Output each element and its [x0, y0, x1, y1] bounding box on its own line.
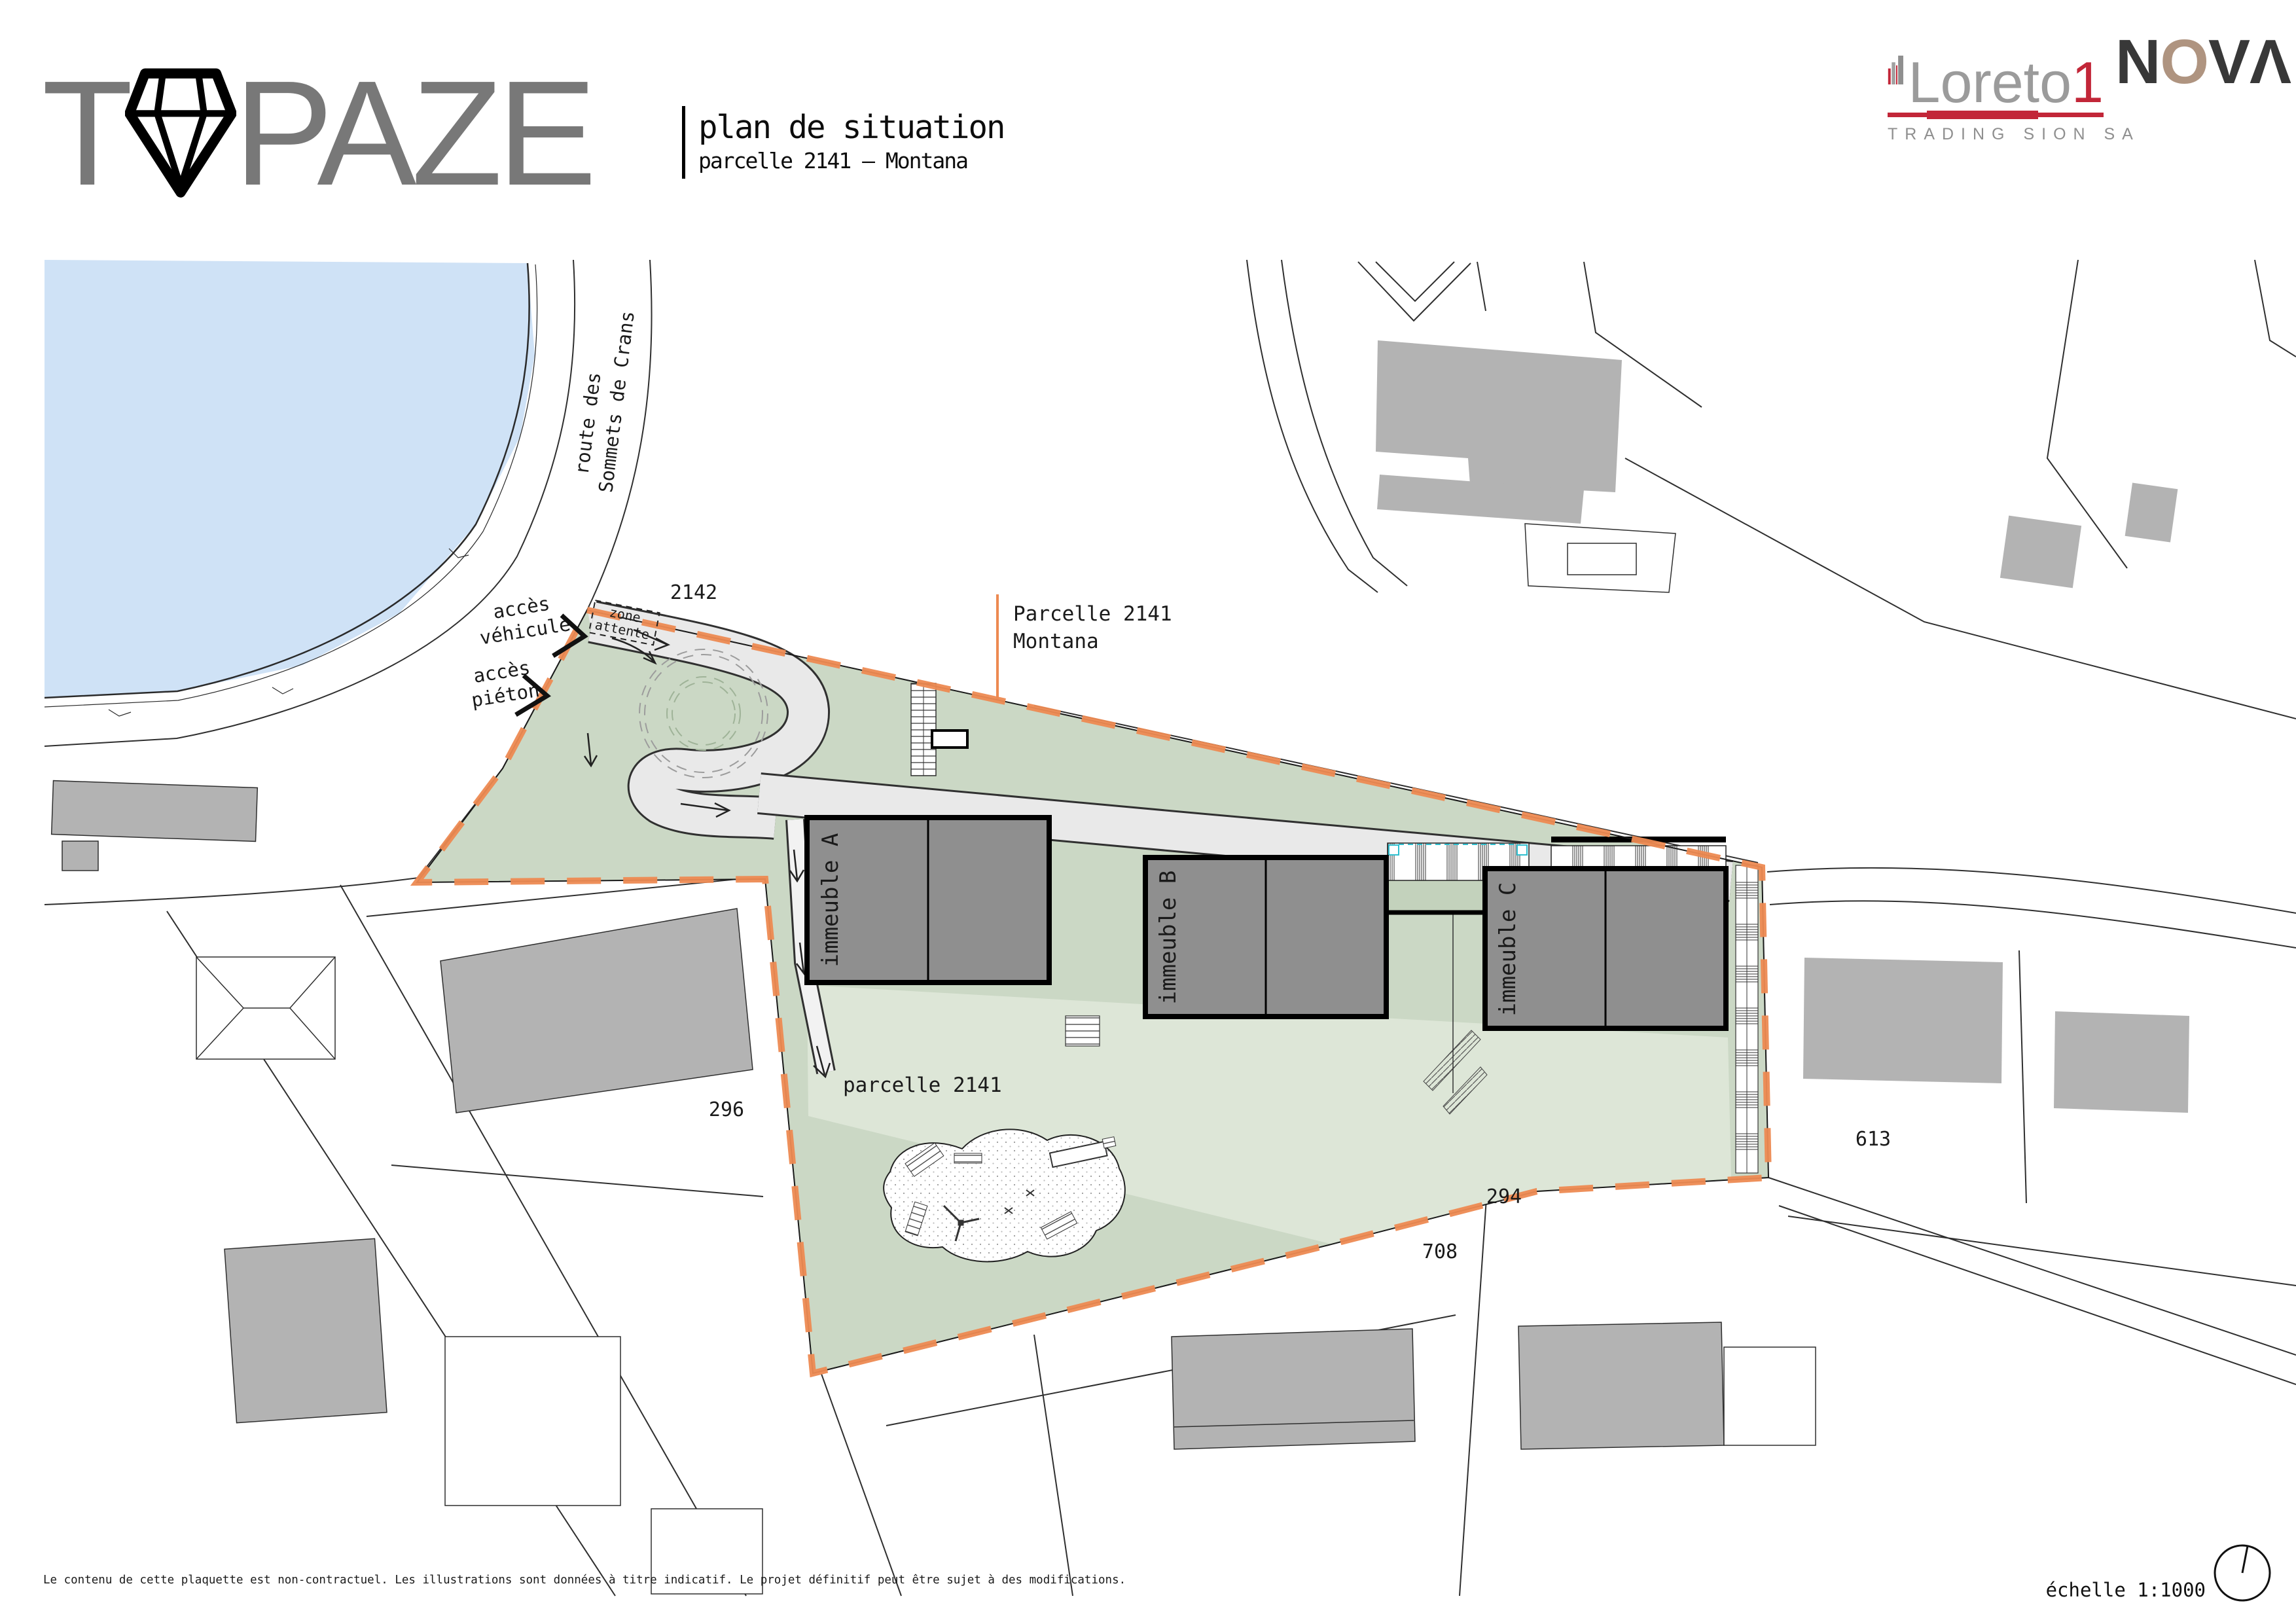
parcel-number-296: 296: [709, 1098, 744, 1121]
street-name: route des Sommets de Crans: [571, 310, 639, 494]
topaze-logo: T PAZE: [42, 55, 592, 212]
nova-v: V: [2208, 27, 2250, 97]
scale-label: échelle 1:1000: [1990, 1579, 2206, 1601]
loreto1-rule: [1888, 113, 2104, 117]
building-a-label: immeuble A: [817, 833, 844, 967]
access-vehicle: accès véhicule: [475, 590, 584, 656]
playground: [884, 1129, 1125, 1261]
nova-logo: NOVΛ: [2115, 26, 2291, 98]
building-a: immeuble A: [807, 818, 1049, 983]
building-c: immeuble C: [1485, 869, 1726, 1028]
inner-parcel-label: parcelle 2141: [843, 1074, 1002, 1097]
parcel-callout-line1: Parcelle 2141: [1013, 602, 1172, 626]
disclaimer-text: Le contenu de cette plaquette est non-co…: [43, 1574, 1126, 1587]
stairs-between-ab: [1066, 1016, 1100, 1046]
title-block: plan de situation parcelle 2141 – Montan…: [682, 106, 1005, 179]
loreto1-tagline: TRADING SION SA: [1888, 125, 2104, 144]
loreto1-buildings-icon: [1888, 27, 1906, 110]
parcel-number-708: 708: [1422, 1240, 1458, 1263]
parking-strip-east: [1736, 865, 1758, 1173]
loreto1-one: 1: [2072, 55, 2104, 110]
north-compass-icon: [2212, 1543, 2272, 1603]
loreto1-logo: Loreto1 TRADING SION SA: [1888, 27, 2104, 144]
diamond-icon: [125, 62, 236, 205]
building-b: immeuble B: [1145, 857, 1386, 1017]
situation-plan-map: immeuble A immeuble B immeuble C 2142 29…: [0, 0, 2296, 1624]
parcel-number-2142: 2142: [670, 581, 717, 604]
nova-o: O: [2160, 27, 2208, 97]
nova-a: Λ: [2250, 27, 2291, 97]
loreto1-name: Loreto: [1909, 55, 2072, 110]
page-subtitle: parcelle 2141 – Montana: [698, 148, 1005, 173]
building-c-label: immeuble C: [1495, 882, 1521, 1017]
site-plan-page: immeuble A immeuble B immeuble C 2142 29…: [0, 0, 2296, 1624]
parcel-number-294: 294: [1486, 1185, 1522, 1208]
topaze-logo-paze: PAZE: [234, 62, 592, 206]
nova-n: N: [2115, 27, 2160, 97]
topaze-logo-t: T: [42, 62, 128, 206]
parcel-number-613: 613: [1856, 1128, 1891, 1151]
shelter: [932, 731, 967, 748]
parcel-callout: Parcelle 2141 Montana: [997, 594, 1172, 699]
page-title: plan de situation: [698, 109, 1005, 146]
lake: [45, 260, 537, 716]
parcel-callout-line2: Montana: [1013, 630, 1099, 653]
building-b-label: immeuble B: [1155, 871, 1181, 1005]
